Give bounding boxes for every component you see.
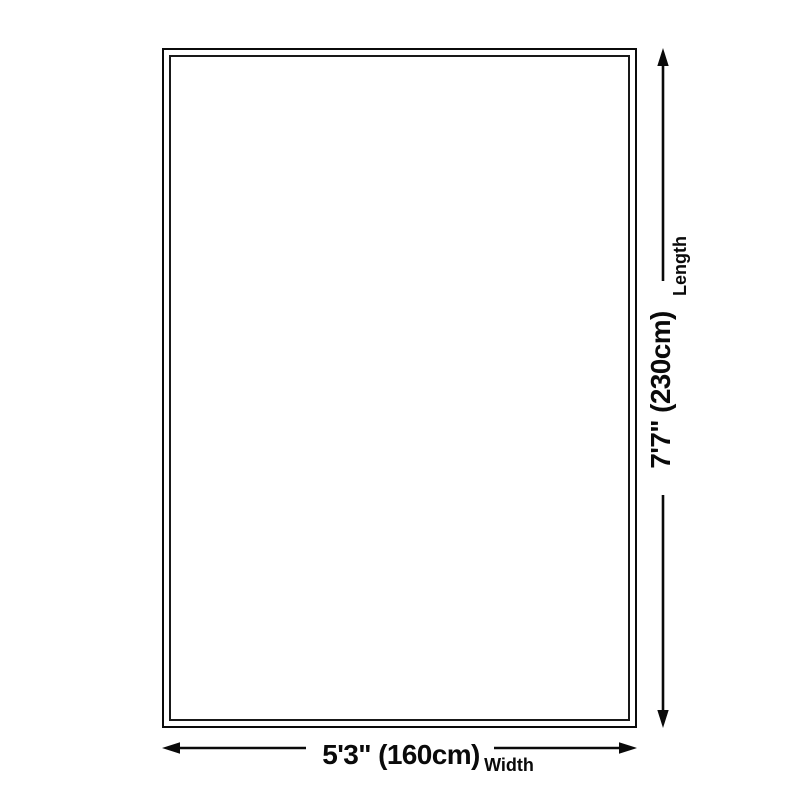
width-label: Width [484, 756, 534, 774]
arrow-right-icon [619, 742, 637, 753]
dimension-diagram: 5'3" (160cm) Width 7'7" (230cm) Length [0, 0, 800, 800]
arrow-down-icon [657, 710, 668, 728]
length-label: Length [671, 236, 689, 296]
arrow-up-icon [657, 48, 668, 66]
length-value: 7'7" (230cm) [647, 311, 675, 469]
dimension-arrows [0, 0, 800, 800]
arrow-left-icon [162, 742, 180, 753]
width-value: 5'3" (160cm) [322, 741, 480, 769]
